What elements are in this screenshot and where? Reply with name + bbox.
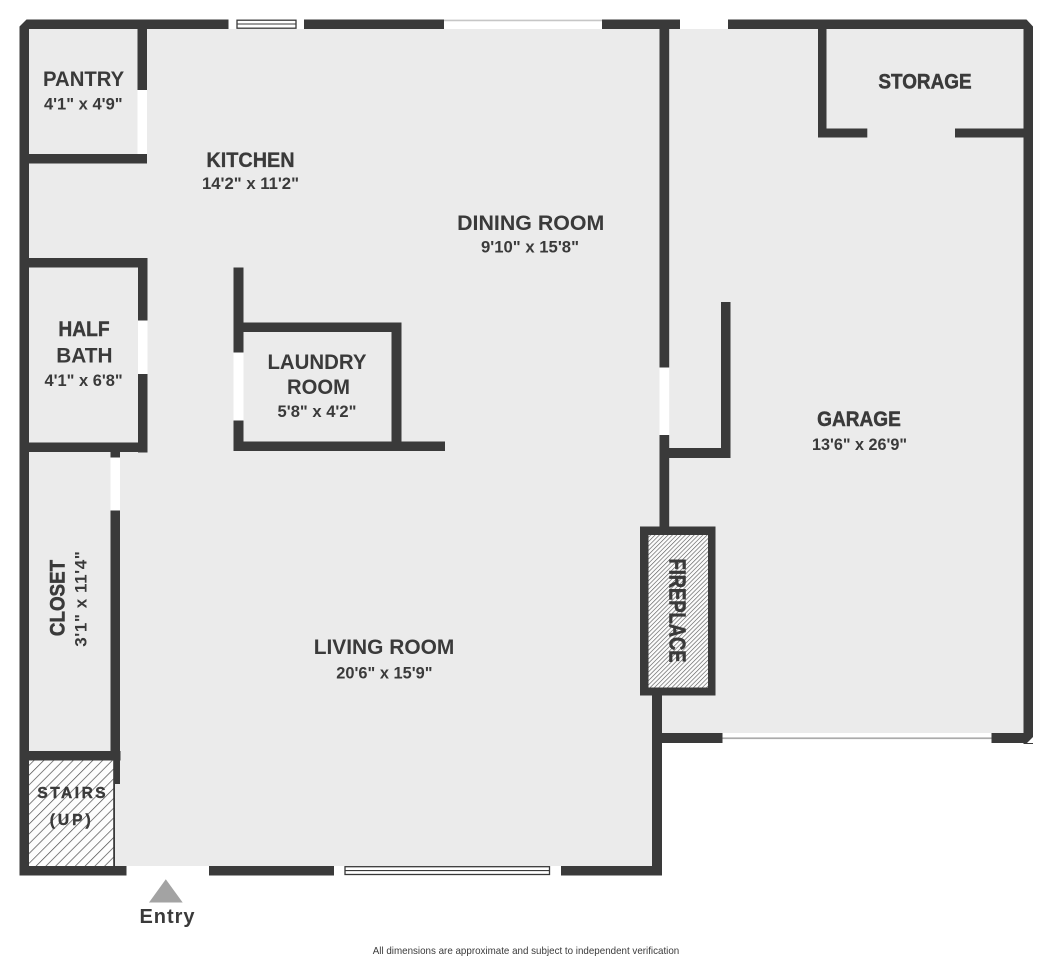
svg-text:BATH: BATH (56, 344, 112, 368)
svg-text:STAIRS: STAIRS (37, 785, 105, 802)
svg-text:DINING ROOM: DINING ROOM (457, 211, 604, 235)
svg-text:3'1" x 11'4": 3'1" x 11'4" (71, 551, 90, 647)
svg-text:GARAGE: GARAGE (817, 407, 901, 431)
svg-text:Entry: Entry (140, 906, 196, 928)
svg-text:FIREPLACE: FIREPLACE (665, 559, 691, 663)
svg-text:14'2" x 11'2": 14'2" x 11'2" (202, 174, 299, 193)
svg-text:4'1" x 6'8": 4'1" x 6'8" (44, 371, 122, 390)
svg-text:LAUNDRY: LAUNDRY (267, 350, 366, 374)
svg-text:13'6" x 26'9": 13'6" x 26'9" (812, 435, 907, 454)
svg-text:LIVING ROOM: LIVING ROOM (314, 635, 455, 659)
svg-text:PANTRY: PANTRY (43, 67, 124, 91)
svg-text:HALF: HALF (58, 317, 109, 341)
svg-text:9'10" x 15'8": 9'10" x 15'8" (481, 238, 579, 257)
svg-text:CLOSET: CLOSET (46, 560, 70, 636)
svg-text:5'8" x 4'2": 5'8" x 4'2" (278, 402, 357, 421)
svg-text:All dimensions are approximate: All dimensions are approximate and subje… (373, 945, 680, 957)
svg-text:STORAGE: STORAGE (878, 69, 971, 93)
svg-text:KITCHEN: KITCHEN (206, 148, 294, 172)
svg-text:20'6" x 15'9": 20'6" x 15'9" (336, 664, 432, 683)
svg-text:4'1" x 4'9": 4'1" x 4'9" (44, 95, 123, 114)
svg-text:ROOM: ROOM (287, 375, 350, 399)
